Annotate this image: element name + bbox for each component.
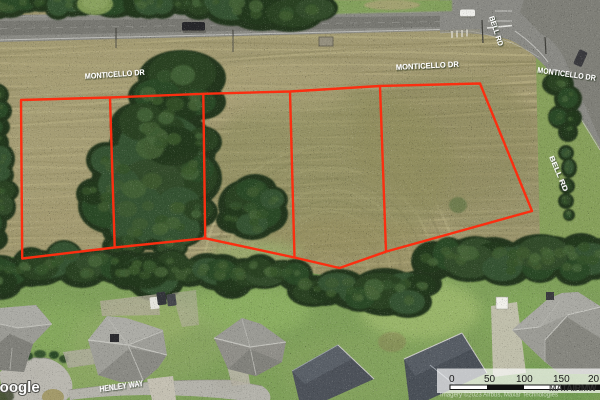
svg-text:0: 0 [449, 374, 455, 385]
svg-text:Google: Google [0, 379, 40, 396]
svg-text:100: 100 [516, 374, 533, 385]
svg-text:Imagery ©2023 Airbus, Maxar Te: Imagery ©2023 Airbus, Maxar Technologies [440, 391, 559, 399]
svg-text:MATAIRMW: MATAIRMW [549, 383, 597, 393]
svg-text:50: 50 [484, 374, 496, 385]
